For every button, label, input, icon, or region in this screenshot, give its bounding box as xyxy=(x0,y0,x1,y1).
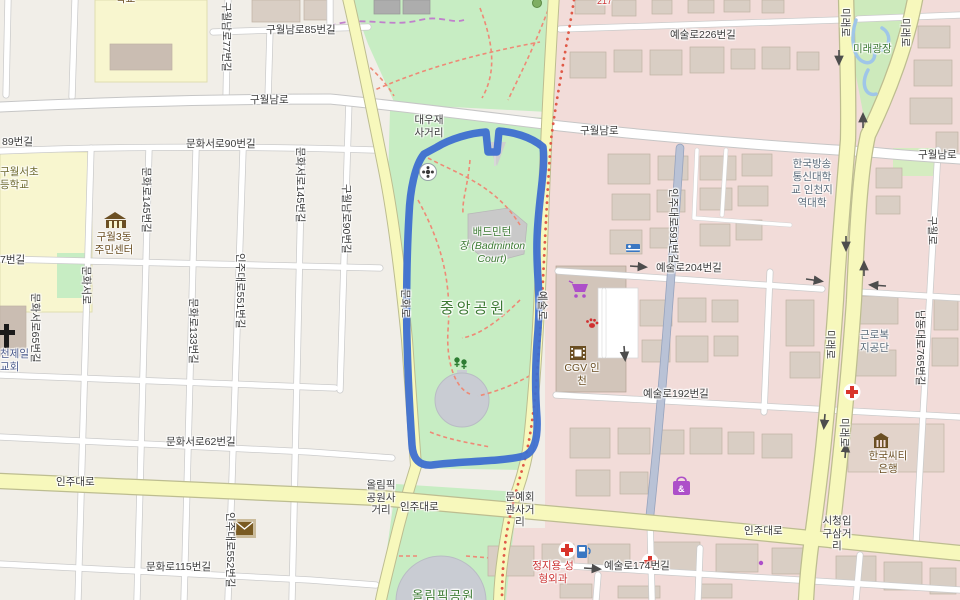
tree-icon xyxy=(533,0,542,8)
post-envelope-icon xyxy=(233,519,256,538)
shop-dot-icon xyxy=(759,561,763,565)
map-svg: & xyxy=(0,0,960,600)
svg-text:&: & xyxy=(678,484,685,494)
map-canvas[interactable]: & 학교 21 xyxy=(0,0,960,600)
hotel-bed-icon xyxy=(626,244,640,252)
cinema-icon xyxy=(570,346,586,360)
poi-dot-icon xyxy=(465,593,469,597)
poi-marker-icon xyxy=(420,164,437,181)
